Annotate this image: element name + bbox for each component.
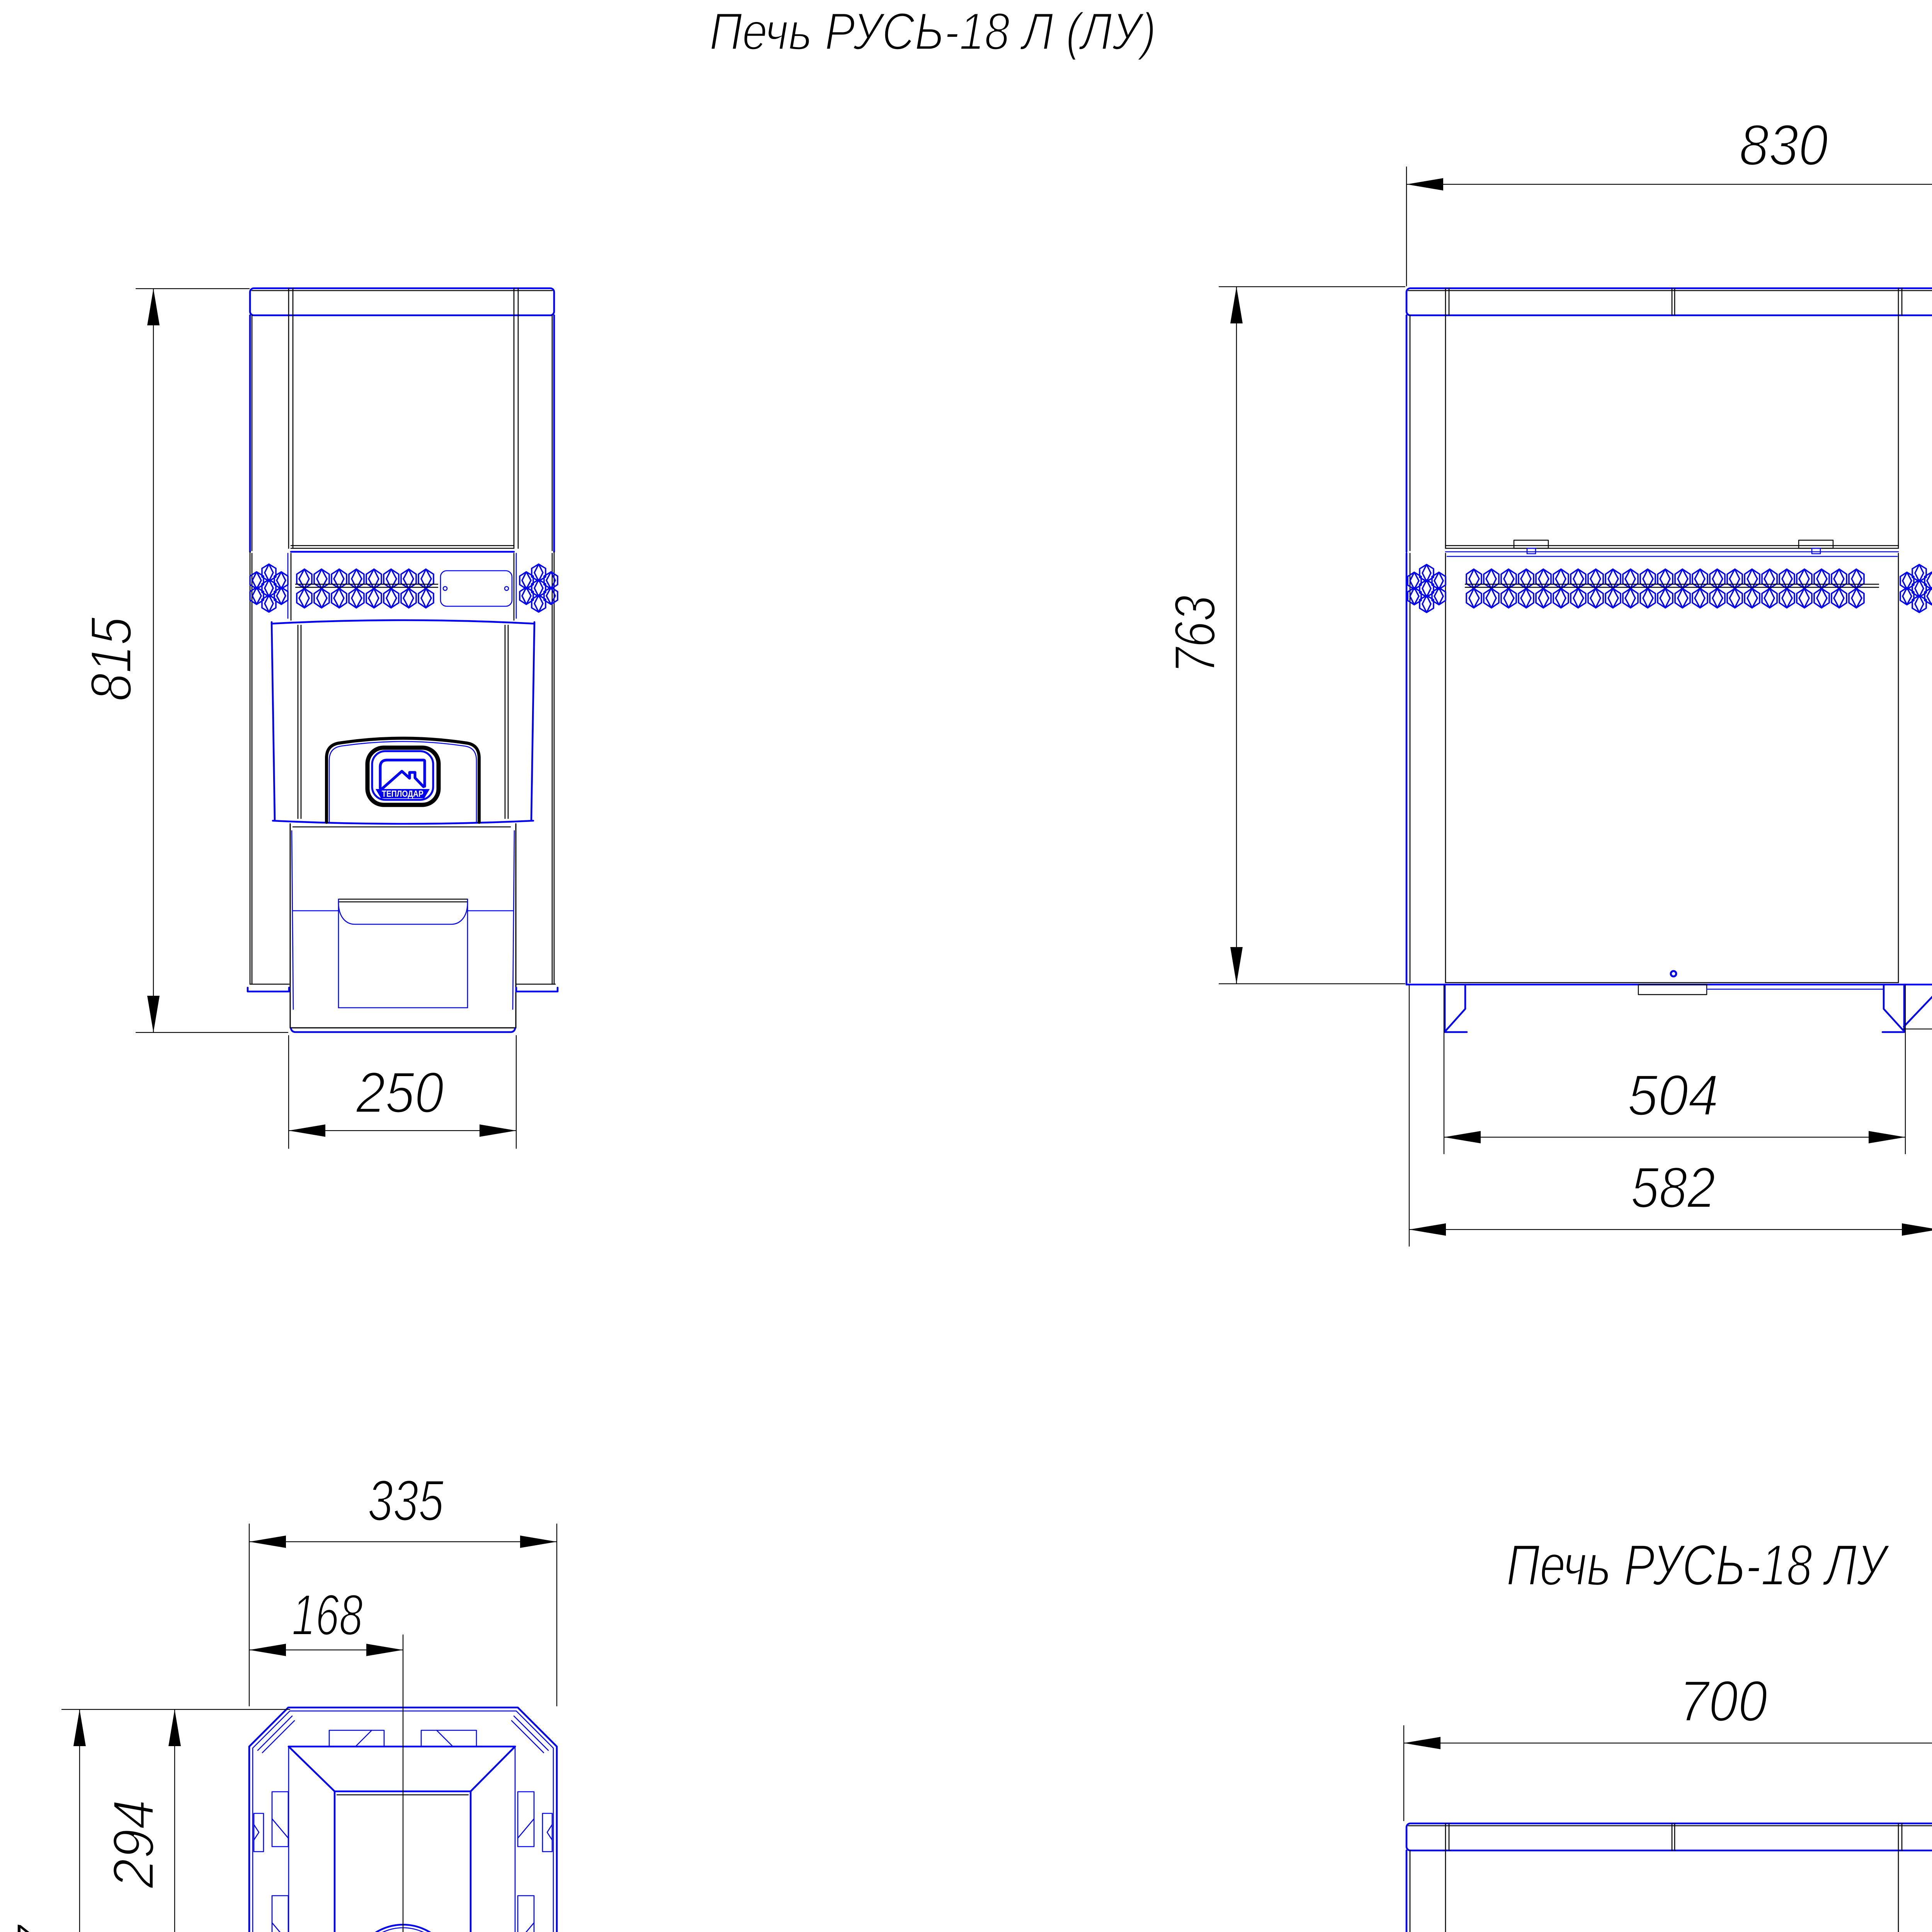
svg-text:815: 815 <box>78 617 143 701</box>
svg-text:582: 582 <box>1631 1155 1716 1220</box>
svg-text:504: 504 <box>1628 1063 1719 1128</box>
svg-text:763: 763 <box>1162 595 1227 674</box>
svg-text:168: 168 <box>292 1582 363 1647</box>
svg-text:294: 294 <box>101 1799 166 1889</box>
svg-text:335: 335 <box>368 1468 444 1533</box>
svg-text:Печь РУСЬ-18 Л (ЛУ): Печь РУСЬ-18 Л (ЛУ) <box>709 2 1156 61</box>
svg-text:ТЕПЛОДАР: ТЕПЛОДАР <box>382 789 423 799</box>
svg-text:587: 587 <box>4 1923 69 1932</box>
svg-text:700: 700 <box>1679 1668 1767 1733</box>
svg-text:250: 250 <box>356 1060 444 1125</box>
svg-text:830: 830 <box>1739 112 1828 177</box>
svg-text:Печь РУСЬ-18 ЛУ: Печь РУСЬ-18 ЛУ <box>1507 1532 1890 1597</box>
